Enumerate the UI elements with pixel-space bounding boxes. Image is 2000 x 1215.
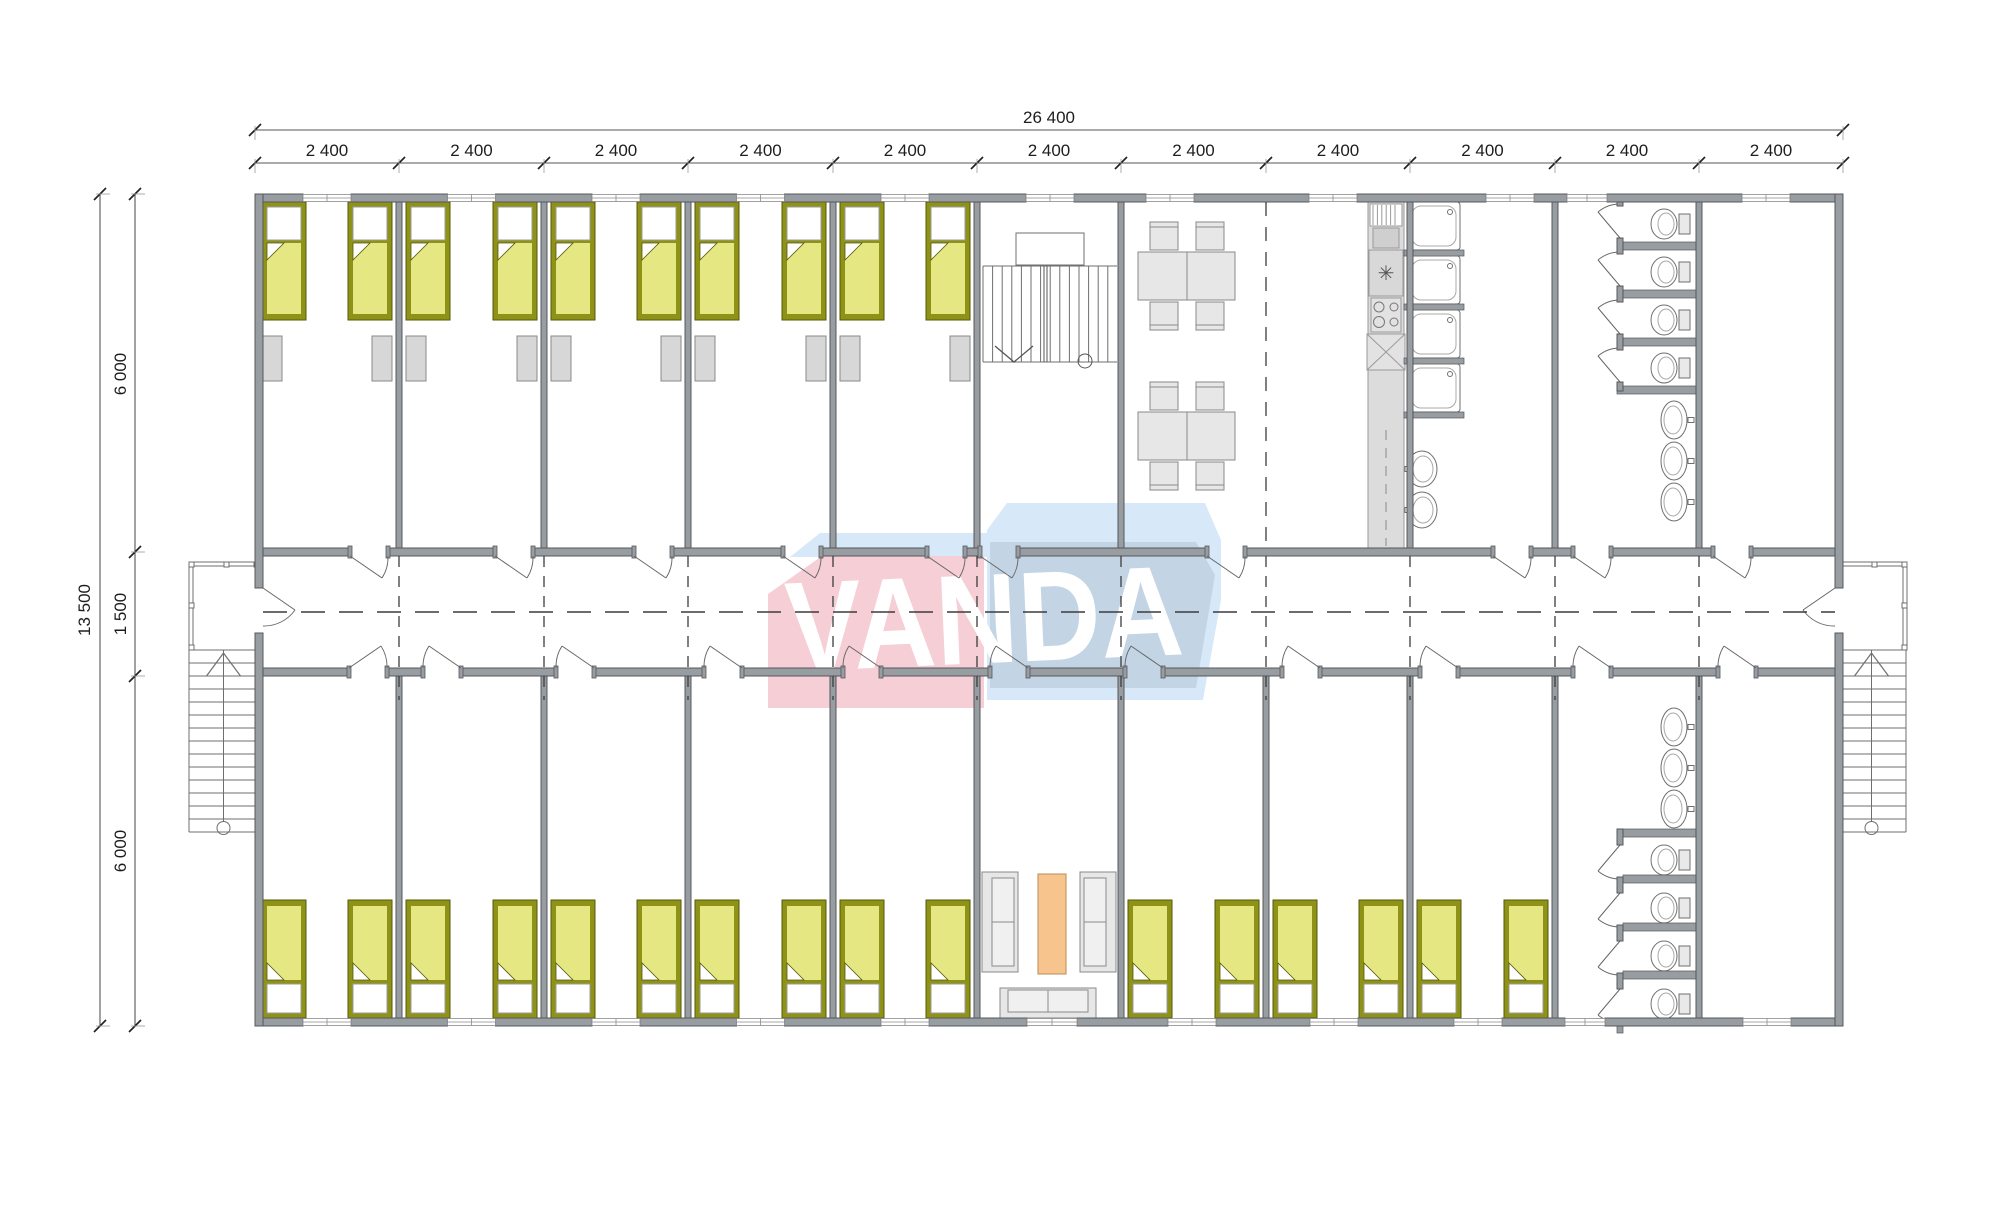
bed [1215,900,1259,1018]
cooktop [1371,298,1401,332]
exterior-wall [1534,194,1567,202]
stall-front-wall [1617,238,1623,254]
corridor-wall [1458,668,1573,676]
dining-chair [1196,302,1224,330]
shower-tray [1408,256,1460,304]
wardrobe-locker [262,336,282,381]
wardrobe-locker [406,336,426,381]
corridor-wall [1163,668,1282,676]
door-leaf [634,556,666,578]
bed [782,900,826,1018]
door-swing [1598,348,1620,382]
dim-label: 1 500 [111,593,130,636]
stall-partition [1623,242,1696,250]
door-leaf [1573,556,1605,578]
door-leaf [1598,893,1620,919]
door-swing [350,556,388,578]
partition-wall [1552,202,1558,548]
partition-wall [396,676,402,1018]
exterior-wall [496,1018,593,1026]
bed [551,900,595,1018]
window [303,195,351,202]
window [448,195,496,202]
window [1742,195,1790,202]
corridor-wall [1611,548,1713,556]
door-leaf [1598,941,1620,967]
bed [1128,900,1172,1018]
door-leaf [1493,556,1525,578]
window [592,195,640,202]
tap [1688,725,1694,730]
door-swing [1493,556,1531,578]
dim-label: 6 000 [111,353,130,396]
dim-label: 2 400 [1606,141,1649,160]
window [1146,195,1194,202]
window [1026,195,1074,202]
cistern [1679,358,1690,378]
partition-wall [685,676,691,1018]
partition-wall [830,202,836,548]
exterior-wall [351,1018,448,1026]
bed-pillow [642,207,676,240]
bed [637,202,681,320]
corridor-wall [881,668,990,676]
dining-table [1138,252,1235,300]
door-swing [704,646,742,668]
corridor-wall [1751,548,1835,556]
door-swing [1573,556,1611,578]
exterior-wall [1077,1018,1168,1026]
bed [695,202,739,320]
rail-post [1902,562,1907,567]
bed [493,202,537,320]
bed [551,202,595,320]
exterior-wall [785,194,882,202]
stall-front-wall [1617,925,1623,941]
tap [1688,766,1694,771]
stall-front-wall [1617,829,1623,845]
door-leaf [1288,646,1320,668]
dining-chair [1196,222,1224,250]
exterior-wall [1607,194,1742,202]
dim-label: 2 400 [306,141,349,160]
rail-post [1872,562,1877,567]
window [1743,1019,1791,1026]
wardrobe-locker [695,336,715,381]
dim-label: 2 400 [1317,141,1360,160]
wardrobe-locker [661,336,681,381]
entrance-porch [1837,562,1907,650]
bed-pillow [498,207,532,240]
bed [782,202,826,320]
stall-partition [1623,875,1696,883]
corridor-wall [1611,668,1718,676]
bed [262,202,306,320]
dining-table [1138,412,1235,460]
dining-chair [1150,222,1178,250]
door-leaf [1598,989,1620,1015]
bed-pillow [700,207,734,240]
toilet-icon [1651,893,1690,923]
cistern [1679,994,1690,1014]
corridor-wall [821,548,927,556]
corridor-wall [461,668,556,676]
sofa [982,872,1018,972]
wardrobe-locker [517,336,537,381]
corridor-wall [594,668,704,676]
corridor-wall [1756,668,1835,676]
staircase-external [1837,650,1906,835]
bed-pillow [787,207,821,240]
bed-pillow [787,984,821,1013]
bed-pillow [353,984,387,1013]
cistern [1679,946,1690,966]
partition-wall [1407,202,1413,548]
corridor-wall [1531,548,1573,556]
door-swing [1598,845,1620,879]
partition-wall [1552,676,1558,1018]
stall-front-wall [1617,973,1623,989]
door-leaf [1803,588,1835,610]
rail-post [189,603,194,608]
bed [406,900,450,1018]
bed-pillow [1509,984,1543,1013]
staircase-internal [983,233,1117,368]
exterior-wall [640,194,737,202]
stall-wall [1617,829,1699,837]
corridor-wall [742,668,843,676]
entrance-porch [189,562,259,650]
washbasin-icon [1661,483,1694,521]
stall-front-wall [1617,286,1623,302]
door-swing [1598,252,1620,286]
kitchen-counter: ✳ [1367,202,1405,552]
bed [348,202,392,320]
cistern [1679,214,1690,234]
bed-pillow [1278,984,1312,1013]
wardrobe-locker [806,336,826,381]
toilet-icon [1651,257,1690,287]
washbasin-icon [1661,749,1694,787]
door-leaf [349,646,381,668]
window [1168,1019,1216,1026]
dining-chair [1196,462,1224,490]
bed [637,900,681,1018]
partition-wall [1118,676,1124,1018]
dim-label: 2 400 [1028,141,1071,160]
exterior-wall [785,1018,882,1026]
partition-wall [1118,202,1124,548]
window [1310,1019,1358,1026]
partition-wall [830,676,836,1018]
dim-label: 2 400 [595,141,638,160]
door-swing [349,646,387,668]
bed [348,900,392,1018]
window [1486,195,1534,202]
bed [262,900,306,1018]
bed-pillow [267,207,301,240]
bed [1504,900,1548,1018]
stall-partition [1623,290,1696,298]
wardrobe-locker [950,336,970,381]
stair-landing [1016,233,1084,265]
door-swing [634,556,672,578]
corridor-wall [387,668,423,676]
cistern [1679,898,1690,918]
toilet-icon [1651,989,1690,1019]
exterior-wall [496,194,593,202]
window [1565,1019,1605,1026]
exterior-wall [1835,633,1843,1026]
bed [695,900,739,1018]
door-leaf [710,646,742,668]
exterior-wall [1502,1018,1565,1026]
window [303,1019,351,1026]
exterior-wall [929,1018,1027,1026]
entrance-door-swing [1803,588,1835,626]
stall-front-wall [1617,877,1623,893]
toilet-icon [1651,845,1690,875]
washbasin-icon [1661,790,1694,828]
partition-wall [396,202,402,548]
partition-wall [541,202,547,548]
cistern [1679,262,1690,282]
bed [1359,900,1403,1018]
exterior-wall [255,633,263,1026]
rail-post [189,645,194,650]
dining-chair [1150,382,1178,410]
stove-symbol: ✳ [1378,263,1395,285]
door-swing [1718,646,1756,668]
door-swing [423,646,461,668]
corridor-wall [533,548,634,556]
window [448,1019,496,1026]
rail-post [1902,645,1907,650]
dim-label: 2 400 [884,141,927,160]
stair-start-circle [217,822,230,835]
dim-label: 26 400 [1023,108,1075,127]
bed [1417,900,1461,1018]
bed-pillow [700,984,734,1013]
entrance-door-swing [263,588,295,626]
stall-partition [1623,971,1696,979]
stair-direction-arrow [995,346,1033,362]
exterior-wall [1605,1018,1743,1026]
window [881,195,929,202]
partition-wall [685,202,691,548]
toilet-icon [1651,305,1690,335]
bed-pillow [642,984,676,1013]
partition-wall [1696,202,1702,548]
exterior-wall [1194,194,1309,202]
kitchen-sink-unit [1373,228,1399,248]
corridor-wall [388,548,495,556]
stall-front-wall [1617,334,1623,350]
bed-pillow [845,984,879,1013]
window [1567,195,1607,202]
door-leaf [1598,260,1620,286]
door-leaf [1598,845,1620,871]
rail-post [1902,603,1907,608]
cistern [1679,850,1690,870]
corridor-wall [1320,668,1420,676]
bed-pillow [1422,984,1456,1013]
lounge-furniture [982,872,1116,1018]
bed-pillow [1364,984,1398,1013]
corridor-wall [263,548,350,556]
stall-partition [1623,923,1696,931]
tap [1688,500,1694,505]
window [1027,1019,1077,1026]
door-leaf [1426,646,1458,668]
bed [493,900,537,1018]
stall-wall [1617,386,1699,394]
wardrobe-locker [372,336,392,381]
partition-wall [1263,676,1269,1018]
tap [1688,459,1694,464]
bed-pillow [498,984,532,1013]
partition-wall [974,202,980,548]
bed [406,202,450,320]
corridor-wall [1028,668,1125,676]
shower-tray [1408,364,1460,412]
stall-partition [1623,338,1696,346]
corridor-wall [1245,548,1493,556]
stair-start-circle [1078,354,1092,368]
partition-wall [541,676,547,1018]
tap [1688,807,1694,812]
stall-front-wall [1617,382,1623,391]
door-swing [1713,556,1751,578]
door-leaf [1713,556,1745,578]
dim-label: 6 000 [111,830,130,873]
dining-chair [1150,462,1178,490]
bed [1273,900,1317,1018]
door-leaf [1579,646,1611,668]
dim-label: 2 400 [739,141,782,160]
cistern [1679,310,1690,330]
shower-tray [1408,202,1460,250]
dim-label: 13 500 [75,584,94,636]
bed-pillow [1220,984,1254,1013]
wardrobe-locker [551,336,571,381]
rail-post [189,562,194,567]
dim-label: 2 400 [1172,141,1215,160]
staircase-external [189,650,258,835]
window [881,1019,929,1026]
dim-label: 2 400 [1750,141,1793,160]
door-leaf [1598,212,1620,238]
door-leaf [1598,308,1620,334]
exterior-wall [929,194,1026,202]
bed-pillow [411,207,445,240]
exterior-wall [1358,1018,1454,1026]
coffee-table [1038,874,1066,974]
bed-pillow [556,984,590,1013]
dining-chair [1150,302,1178,330]
bed-pillow [556,207,590,240]
bed-pillow [1133,984,1167,1013]
door-swing [556,646,594,668]
corridor-wall [263,668,349,676]
corridor-wall [1018,548,1207,556]
exterior-wall [1357,194,1486,202]
toilet-icon [1651,209,1690,239]
toilet-icon [1651,941,1690,971]
bed [926,202,970,320]
tap [1688,418,1694,423]
bed [840,900,884,1018]
door-swing [1598,204,1620,238]
bed [926,900,970,1018]
door-swing [1282,646,1320,668]
window [1309,195,1357,202]
door-leaf [350,556,382,578]
exterior-wall [255,194,263,588]
door-swing [1598,300,1620,334]
washbasin-icon [1661,708,1694,746]
floor-plan-page: VANDA✳26 4002 4002 4002 4002 4002 4002 4… [0,0,2000,1215]
door-leaf [263,588,295,610]
corridor-wall [672,548,783,556]
window [737,1019,785,1026]
wardrobe-locker [840,336,860,381]
exterior-wall [1835,194,1843,588]
window [1454,1019,1502,1026]
door-swing [1573,646,1611,668]
toilet-icon [1651,353,1690,383]
floor-plan-drawing: VANDA✳26 4002 4002 4002 4002 4002 4002 4… [0,0,2000,1215]
bed-pillow [931,207,965,240]
door-leaf [1724,646,1756,668]
bed-pillow [411,984,445,1013]
sofa-bench [1000,988,1096,1018]
stall-front-wall [1617,202,1623,206]
washbasin-icon [1661,401,1694,439]
bed-pillow [353,207,387,240]
bed-pillow [931,984,965,1013]
door-leaf [429,646,461,668]
partition-wall [1407,676,1413,1018]
dining-chair [1196,382,1224,410]
door-swing [495,556,533,578]
door-swing [1420,646,1458,668]
washbasin-icon [1661,442,1694,480]
partition-wall [1696,676,1702,1018]
dim-label: 2 400 [450,141,493,160]
shower-tray [1408,310,1460,358]
worktop-unit [1367,334,1405,370]
door-leaf [495,556,527,578]
rail-post [224,562,229,567]
window [737,195,785,202]
door-swing [1598,893,1620,927]
window [592,1019,640,1026]
bed [840,202,884,320]
bed-pillow [267,984,301,1013]
door-swing [1598,941,1620,975]
door-leaf [562,646,594,668]
dim-label: 2 400 [1461,141,1504,160]
sofa [1080,872,1116,972]
door-leaf [1598,356,1620,382]
exterior-wall [1074,194,1146,202]
partition-wall [974,676,980,1018]
stair-start-circle [1865,822,1878,835]
exterior-wall [1216,1018,1310,1026]
exterior-wall [640,1018,737,1026]
bed-pillow [845,207,879,240]
